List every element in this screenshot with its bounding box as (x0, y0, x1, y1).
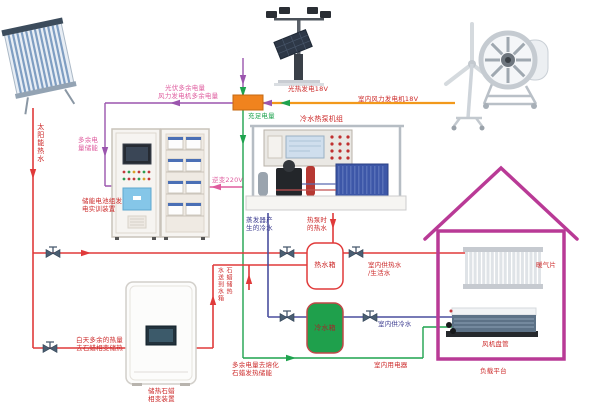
fan-coil-unit (446, 308, 538, 337)
label-heat-pump-unit: 冷水热泵机组 (300, 115, 343, 124)
label-load-platform: 负载平台 (480, 367, 507, 375)
label-indoor-wind-gen: 室内风力发电机18V (358, 95, 418, 103)
radiator (463, 247, 543, 289)
label-paraffin-to-tank: 水送到水箱 石蜡储热 (216, 267, 232, 302)
solar-collector (1, 18, 80, 116)
label-evaporator-cold-water: 蒸发器产 生的冷水 (246, 216, 273, 232)
label-radiator: 暖气片 (536, 261, 556, 269)
battery-cabinet (161, 129, 209, 240)
label-hot-tank: 热水箱 (307, 261, 343, 270)
label-battery-cabinet: 储能电池组发 电实训装置 (82, 197, 122, 213)
label-sufficient-power: 充足电量 (248, 112, 275, 120)
label-solar-hot-water: 太阳能热水 (36, 123, 45, 163)
label-surplus-storage: 多余电 量储能 (78, 136, 98, 152)
heat-pump-bench (246, 126, 406, 210)
label-cold-tank: 冷水箱 (307, 324, 343, 333)
ducted-fan (481, 33, 548, 109)
label-melt-paraffin: 多余电量去熔化 石蜡发热储能 (232, 361, 279, 377)
energy-system-diagram: 光伏多余电量 风力发电机多余电量 光热发电18V 室内风力发电机18V 充足电量… (0, 0, 600, 419)
label-indoor-hot-water: 室内供热水 /生活水 (368, 261, 402, 277)
solar-tracker (266, 7, 331, 86)
label-pv-surplus: 光伏多余电量 (165, 84, 205, 92)
paraffin-cabinet (126, 282, 196, 386)
magenta-power-arrow (211, 184, 221, 190)
label-fan-coil: 风机盘管 (482, 340, 509, 348)
label-wind-surplus: 风力发电机多余电量 (158, 92, 218, 100)
label-paraffin-device: 储热石蜡 相变装置 (148, 387, 175, 403)
label-inverter: 逆变220V (212, 176, 243, 184)
label-indoor-appliance: 室内用电器 (374, 361, 408, 369)
label-day-surplus-heat: 白天多余的热量 去石蜡相变储热 (76, 336, 123, 352)
label-indoor-cold-water: 室内供冷水 (378, 320, 412, 328)
power-junction-box (233, 95, 263, 110)
label-solar-thermal-gen: 光热发电18V (288, 85, 328, 93)
control-cabinet (112, 129, 160, 240)
label-heat-pump-hot-water: 热泵时 的热水 (307, 216, 327, 232)
